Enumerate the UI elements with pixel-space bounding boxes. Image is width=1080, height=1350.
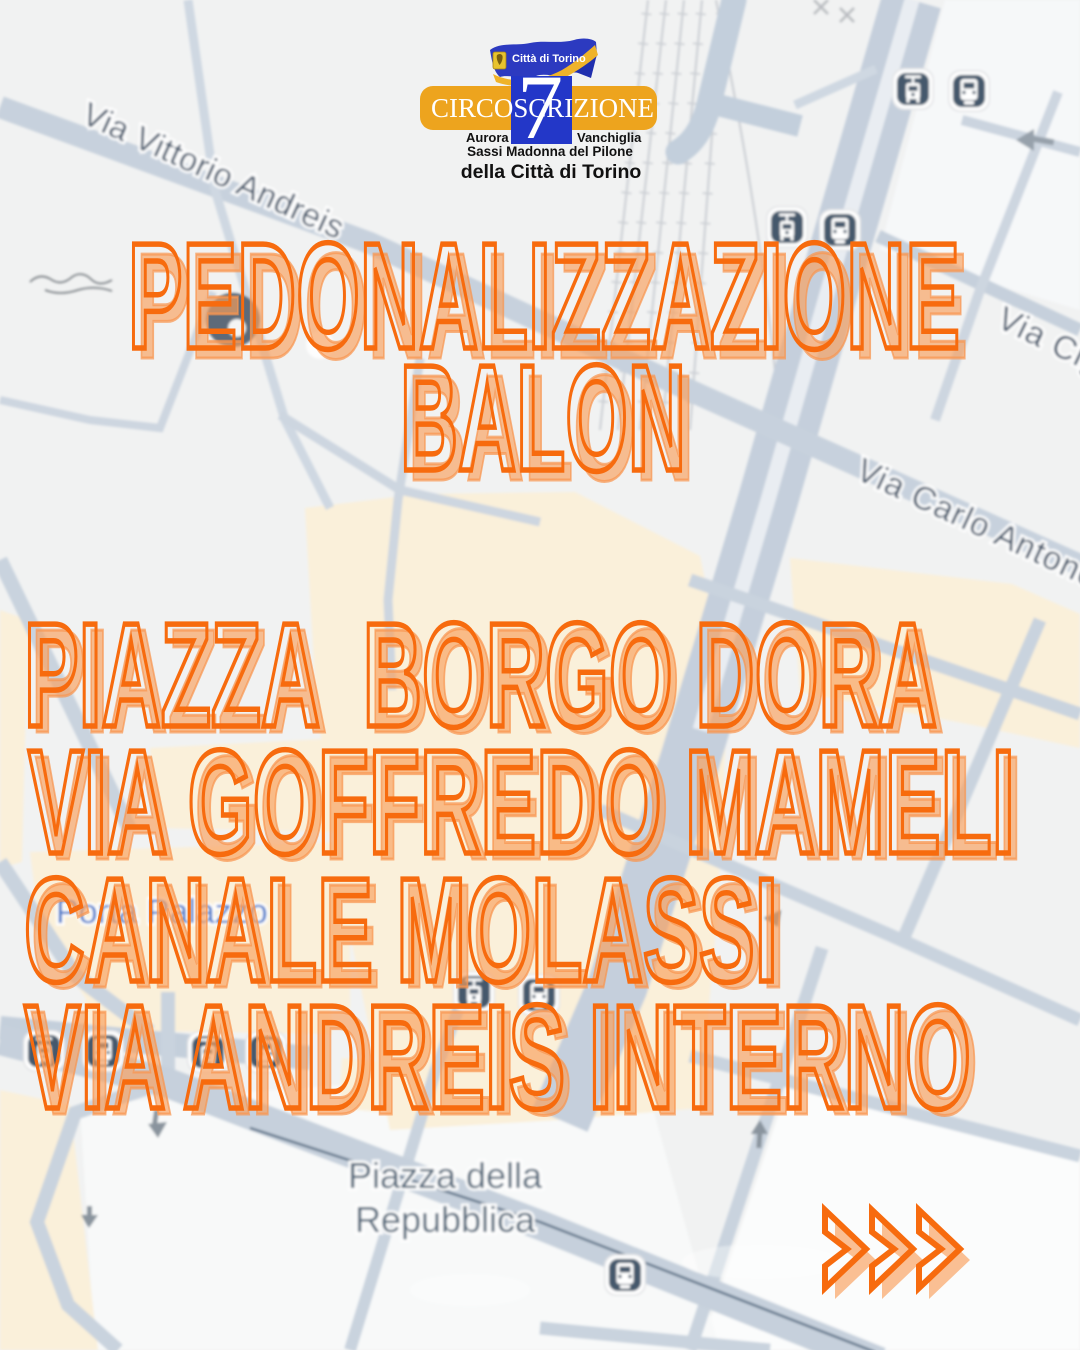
svg-text:BALON: BALON bbox=[400, 333, 686, 502]
svg-text:Piazza della: Piazza della bbox=[348, 1155, 543, 1196]
svg-text:7: 7 bbox=[517, 56, 563, 158]
svg-text:VIA ANDREIS INTERNO: VIA ANDREIS INTERNO bbox=[24, 975, 971, 1140]
svg-text:Vanchiglia: Vanchiglia bbox=[577, 130, 642, 145]
svg-text:Aurora: Aurora bbox=[466, 130, 509, 145]
svg-text:Sassi Madonna del Pilone: Sassi Madonna del Pilone bbox=[467, 144, 633, 159]
svg-text:della Città di Torino: della Città di Torino bbox=[461, 161, 642, 183]
svg-text:Repubblica: Repubblica bbox=[355, 1199, 536, 1240]
